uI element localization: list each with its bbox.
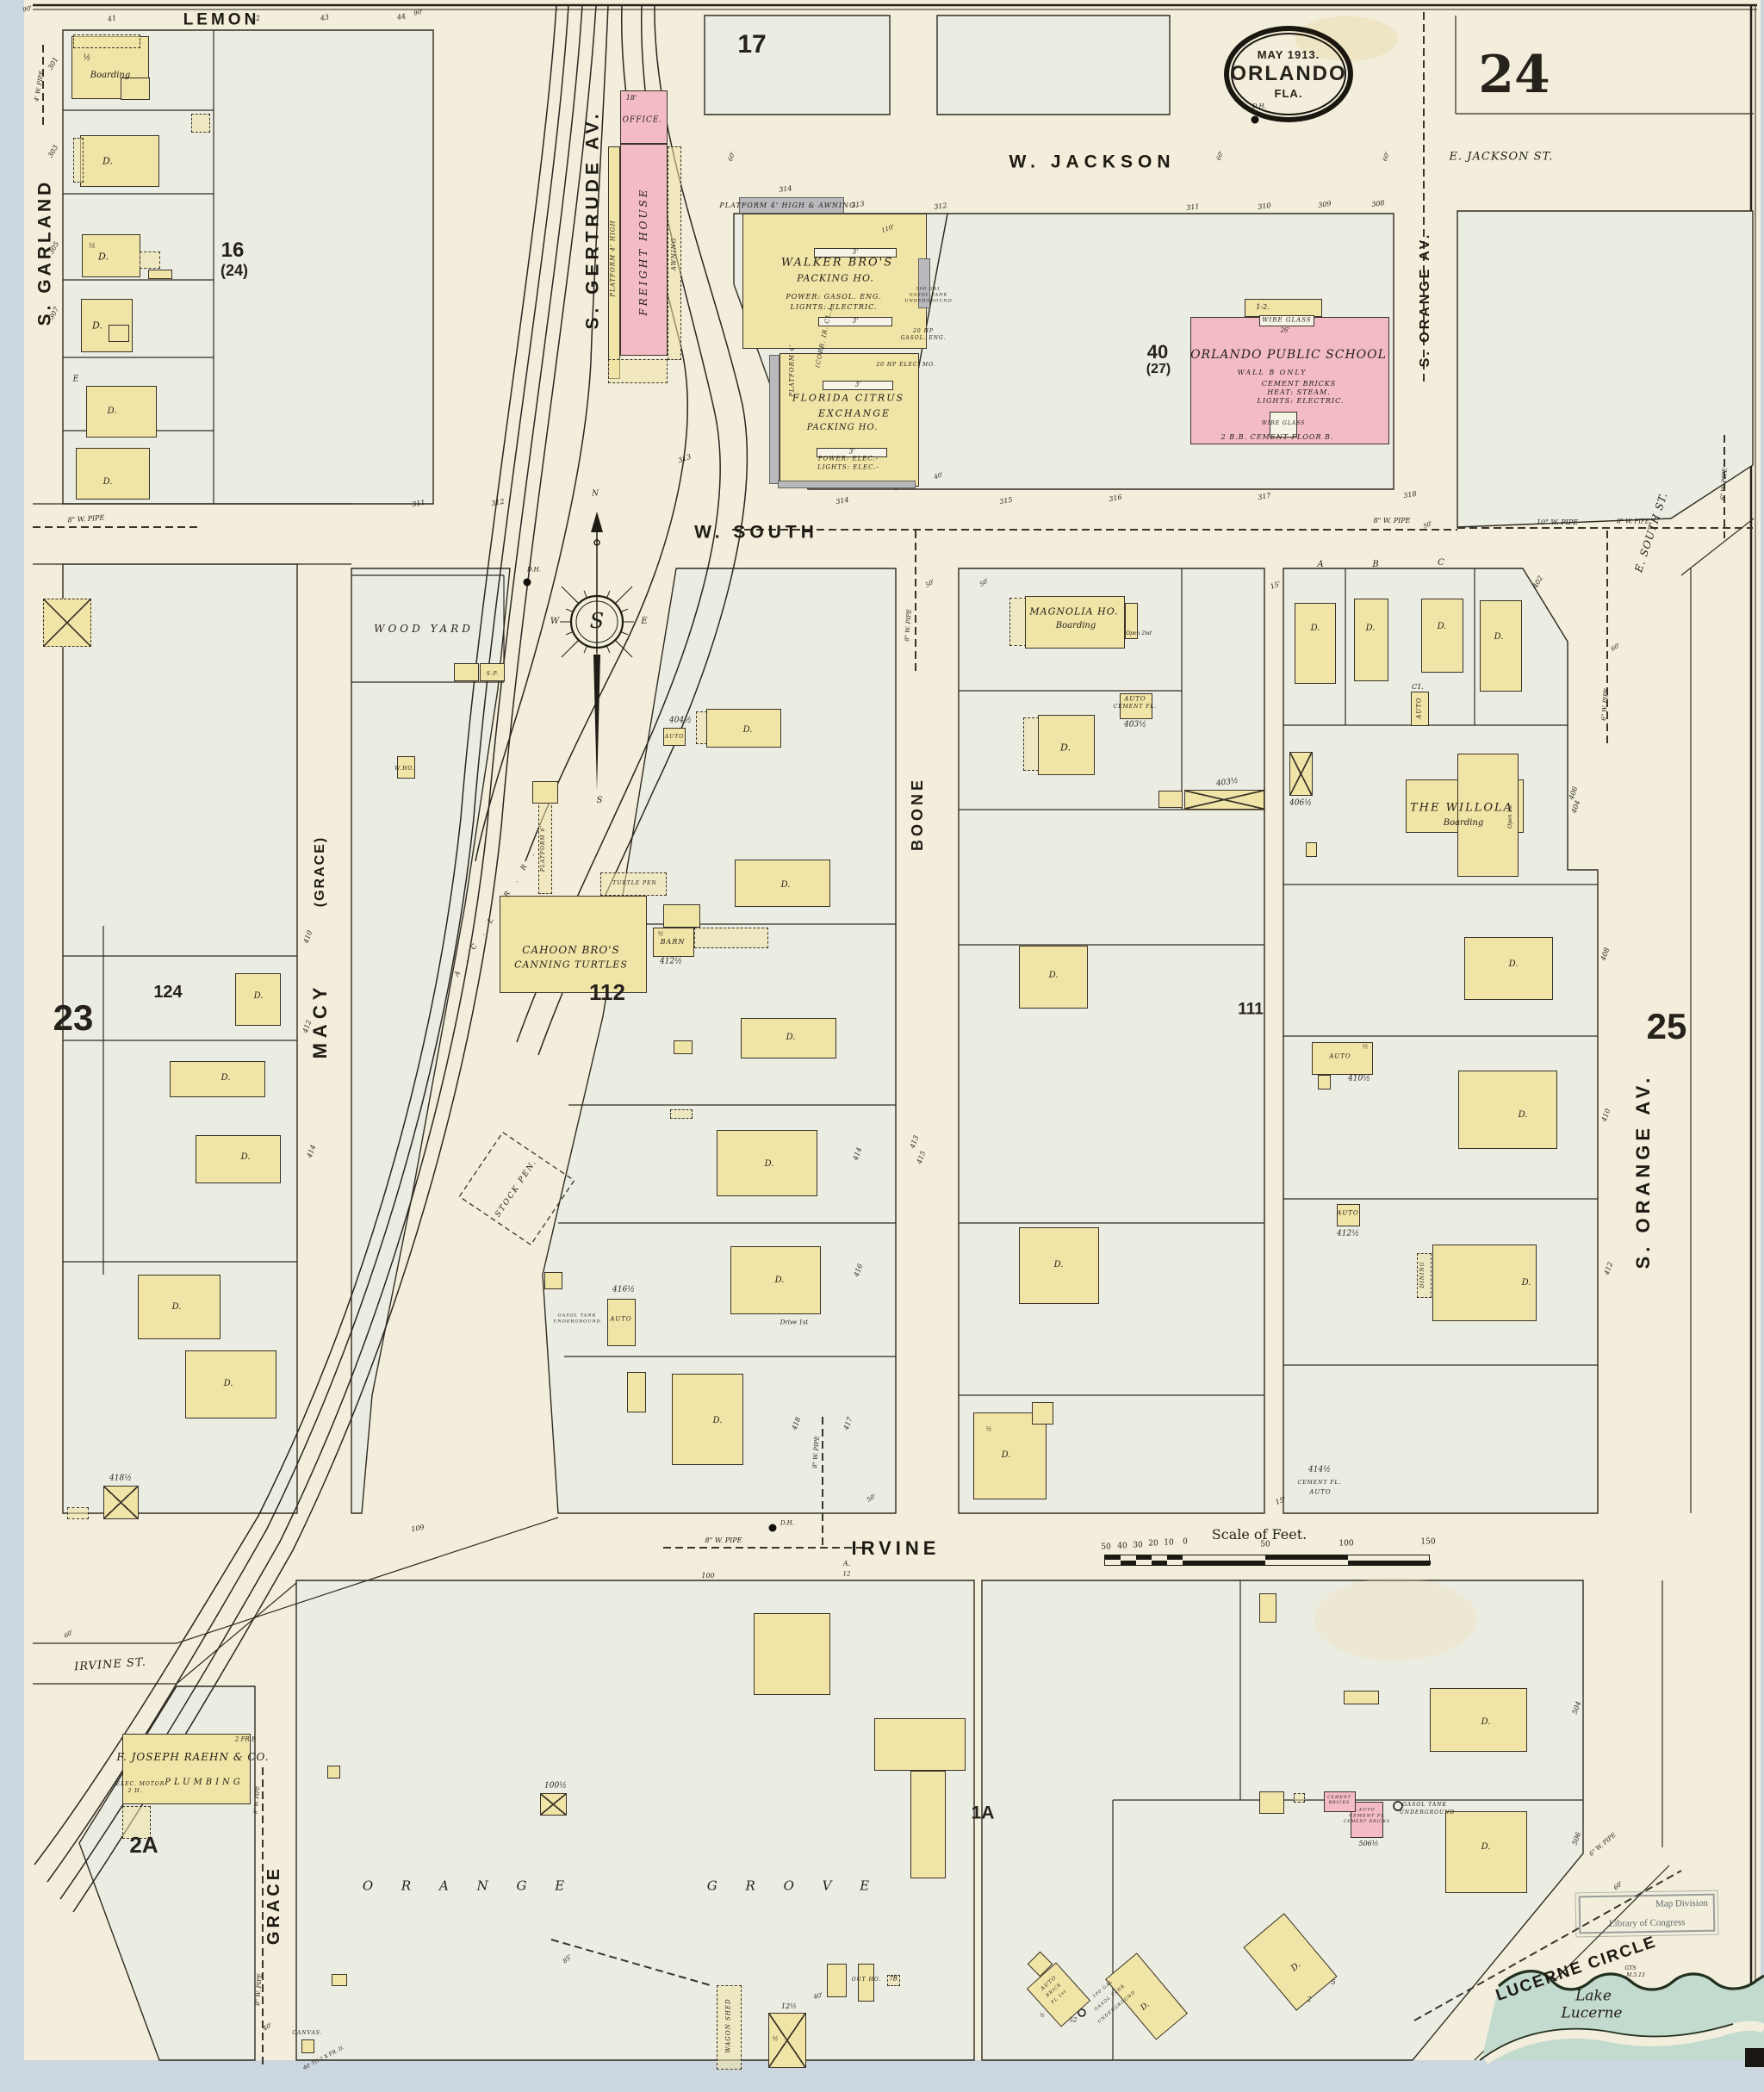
building — [1430, 1688, 1527, 1752]
note: GASOL TANK — [1402, 1803, 1447, 1808]
building-label: Boarding — [90, 71, 131, 80]
block-number: 16 — [221, 240, 245, 261]
scale-tick: 150 — [1420, 1539, 1435, 1547]
dimension: 26' — [1281, 328, 1290, 334]
stamp-date: MAY 1913. — [1258, 48, 1320, 61]
note: 2 — [1307, 1996, 1311, 2003]
building — [1259, 1791, 1284, 1814]
building — [858, 1964, 874, 2002]
building — [1354, 599, 1388, 681]
building-label: D. — [786, 1034, 796, 1042]
building-label: LIGHTS: ELEC.- — [817, 465, 879, 471]
building — [1289, 752, 1313, 796]
sanborn-map-page: LEMONS. GARLANDS. GERTRUDE AV.W. JACKSON… — [0, 0, 1764, 2092]
lot-letter: C — [1438, 559, 1444, 568]
scale-bar-cell — [1265, 1555, 1348, 1560]
note: GASOL. ENG. — [900, 336, 946, 341]
note: 12 — [843, 1572, 851, 1578]
building-label: F. JOSEPH RAEHN & CO. — [117, 1752, 270, 1762]
note: 1-2. — [1256, 304, 1269, 311]
building-label: PACKING HO. — [807, 424, 879, 432]
address: 100½ — [544, 1783, 567, 1791]
orange-grove-label: O R A N G E — [363, 1880, 576, 1893]
note: Open 2nd — [1126, 631, 1152, 636]
building-label: D. — [224, 1380, 233, 1388]
building-label: D. — [1509, 960, 1519, 969]
building-label: D. — [765, 1160, 774, 1169]
building — [910, 1771, 946, 1878]
building — [769, 355, 780, 484]
building — [140, 251, 160, 269]
building-label: PACKING HO. — [797, 274, 874, 283]
building — [170, 1061, 265, 1097]
note: UNDERGROUND — [1400, 1810, 1455, 1816]
scale-bar-cell — [1136, 1561, 1152, 1565]
loc-stamp-line1: Map Division — [1655, 1898, 1708, 1909]
note: GASOL TANK — [910, 294, 948, 298]
dimension: 3' — [853, 319, 858, 325]
building — [1306, 842, 1317, 857]
note: ELEC. MOTOR — [116, 1782, 165, 1787]
scale-bar-cell — [1167, 1555, 1183, 1560]
note: ½ — [986, 1427, 992, 1433]
scale-bar — [1104, 1555, 1430, 1566]
building-label: D. — [241, 1153, 251, 1162]
loc-stamp-line2: Library of Congress — [1609, 1917, 1686, 1929]
note: Drive 1st — [780, 1320, 808, 1326]
street-w-jackson: W. JACKSON — [1009, 153, 1175, 171]
adjacent-sheet-number: 25 — [1647, 1009, 1687, 1045]
building-label: WOOD YARD — [374, 624, 474, 634]
building — [109, 325, 129, 342]
note: 2 H. — [128, 1789, 143, 1794]
scale-bar-cell — [1105, 1561, 1121, 1565]
hydrant-label: D.H. — [780, 1521, 794, 1527]
note: LIGHTS: ELECTRIC. — [1258, 398, 1345, 405]
building-label: CEMENT FL. — [1114, 705, 1158, 710]
survey-date-stamp-ring: MAY 1913. ORLANDO FLA. — [1231, 33, 1346, 115]
scale-tick: 0 — [1183, 1539, 1188, 1547]
building-label: OUT HO. — [852, 1977, 882, 1983]
building-label: POWER: ELEC.- — [818, 456, 879, 462]
block-number: 112 — [589, 981, 625, 1003]
scale-bar-cell — [1265, 1561, 1348, 1565]
building — [827, 1964, 847, 1997]
building-label: D. — [1049, 972, 1059, 980]
scale-tick: 10 — [1164, 1540, 1173, 1548]
block-number: 111 — [1238, 1002, 1264, 1018]
building-label: BARN — [661, 939, 686, 946]
scale-tick: 50 — [1101, 1544, 1110, 1552]
building-label: D. — [1519, 1111, 1528, 1120]
building-label: D. — [98, 252, 109, 262]
building-label: D. — [102, 157, 113, 166]
note: 2 B.B. CEMENT FLOOR B. — [1221, 434, 1334, 441]
building — [663, 904, 700, 928]
building — [196, 1135, 281, 1183]
scale-bar-cell — [1183, 1555, 1265, 1560]
lot-letter: B — [1372, 561, 1378, 569]
building — [540, 1793, 567, 1816]
lot-letter: C1. — [1412, 684, 1424, 691]
building-label: PLATFORM 4' HIGH & AWNING. — [719, 202, 858, 209]
building — [672, 1374, 743, 1465]
dimension: 3' — [849, 450, 854, 456]
scale-bar-cell — [1167, 1561, 1183, 1565]
street-s-orange-av: S. ORANGE AV. — [1634, 1074, 1653, 1269]
compass-n: N — [592, 491, 599, 499]
building — [1294, 1793, 1305, 1803]
building — [76, 448, 150, 500]
address: 410½ — [1348, 1076, 1370, 1083]
dimension: 3' — [855, 382, 860, 388]
note: WALL B ONLY — [1238, 369, 1307, 376]
building — [778, 481, 916, 488]
note: WIRE GLASS — [1262, 318, 1311, 324]
scale-bar-cell — [1152, 1555, 1167, 1560]
note: 20 HP ELEC. MO. — [876, 363, 935, 368]
building-label: CANNING TURTLES — [514, 960, 628, 970]
note: CEMENT BRICKS — [1344, 1821, 1390, 1825]
building-label: AUTO — [1358, 1809, 1375, 1813]
building — [80, 135, 159, 187]
building-label: FREIGHT HOUSE — [638, 187, 649, 315]
note: ½ — [1363, 1045, 1369, 1051]
note: CEMENT BRICKS — [1262, 381, 1337, 388]
building-label: WAGON SHED — [726, 1998, 732, 2052]
note: HEAT: STEAM. — [1267, 389, 1331, 396]
building-label: D. — [221, 1074, 231, 1083]
building-label: D. — [1366, 624, 1376, 633]
street-e-jackson-st: E. JACKSON ST. — [1450, 152, 1554, 163]
building-label: CAHOON BRO'S — [522, 945, 620, 955]
note: ½ — [773, 2037, 779, 2043]
street-boone: BOONE — [910, 777, 925, 851]
building-label: D. — [1438, 623, 1447, 631]
street-irvine: IRVINE — [852, 1539, 941, 1558]
building-label: WALKER BRO'S — [781, 258, 893, 269]
scale-tick: 20 — [1148, 1541, 1158, 1549]
note: M.5.13 — [1626, 1973, 1644, 1978]
building-label: OFFICE. — [623, 117, 663, 125]
block-number: 2A — [129, 1834, 158, 1856]
building — [86, 386, 157, 438]
building-label: D. — [781, 881, 791, 890]
building — [1458, 1071, 1557, 1149]
building-label: PLATFORM 6' — [541, 825, 546, 872]
library-of-congress-stamp: Map Division Library of Congress — [1579, 1894, 1716, 1934]
pipe-label: 8" W. PIPE — [1374, 518, 1411, 525]
building-label: EXCHANGE — [818, 409, 891, 419]
block-number: 124 — [153, 984, 182, 1001]
street-w-south: W. SOUTH — [694, 524, 818, 542]
building — [874, 1718, 966, 1771]
dimension: 18' — [626, 95, 637, 102]
scale-tick: 50 — [1260, 1542, 1270, 1549]
pipe-label: 10" W. PIPE — [1537, 519, 1578, 526]
building — [67, 1507, 89, 1519]
address: 404½ — [669, 717, 692, 725]
building-label: ORLANDO PUBLIC SCHOOL — [1190, 349, 1387, 361]
building-label: Boarding — [1444, 819, 1484, 828]
address: 506½ — [1358, 1841, 1378, 1847]
address: 412½ — [660, 959, 682, 966]
building — [1032, 1402, 1053, 1425]
note: 7B — [889, 1977, 898, 1983]
building-label: AUTO — [665, 735, 684, 740]
building — [103, 1486, 139, 1519]
block-number: 1A — [972, 1804, 995, 1822]
building-label: TURTLE PEN — [612, 881, 656, 886]
scale-tick: 100 — [1339, 1540, 1353, 1548]
building-label: ½ — [84, 55, 91, 63]
building — [1445, 1811, 1527, 1893]
address: 414½ — [1308, 1467, 1331, 1474]
scale-bar-cell — [1348, 1555, 1431, 1560]
building-label: PLATFORM 4' — [790, 344, 796, 396]
building — [1009, 598, 1027, 646]
address: 418½ — [109, 1475, 132, 1483]
building-label: PLUMBING — [165, 1779, 244, 1787]
building-label: CANVAS. — [292, 2031, 322, 2036]
note: ½ — [1040, 2014, 1045, 2019]
building — [301, 2039, 314, 2053]
building — [148, 270, 172, 279]
lot-letter: A — [1317, 561, 1323, 569]
scale-bar-cell — [1183, 1561, 1265, 1565]
building — [332, 1974, 347, 1986]
building-label: D. — [1054, 1261, 1064, 1269]
building — [454, 663, 479, 681]
stamp-city: ORLANDO — [1230, 62, 1346, 86]
street-grace: GRACE — [265, 1865, 283, 1945]
building-label: D. — [1060, 743, 1071, 753]
orange-grove-label: G R O V E — [707, 1880, 881, 1893]
building — [43, 599, 91, 647]
building — [754, 1613, 830, 1695]
note: WIRE GLASS — [1262, 421, 1306, 426]
compass-e: E — [641, 618, 647, 626]
address: 12½ — [781, 2003, 797, 2010]
building-label: AUTO — [1124, 697, 1146, 703]
building — [327, 1766, 340, 1779]
sheet-number: 24 — [1475, 45, 1553, 105]
building-label: D. — [108, 407, 117, 416]
building — [608, 359, 668, 383]
scale-bar-cell — [1105, 1555, 1121, 1560]
adjacent-sheet-number: 23 — [53, 1000, 94, 1036]
note: A. — [843, 1561, 850, 1567]
address: 406½ — [1289, 800, 1312, 808]
lake-label: Lake — [1575, 1990, 1612, 2004]
note: 20 HP — [913, 329, 934, 334]
building-label: D. — [1002, 1451, 1011, 1460]
building-label: AUTO — [1417, 697, 1423, 718]
building-label: D. — [1522, 1279, 1531, 1288]
address: 100 — [701, 1573, 714, 1580]
pipe-label: 8" W. PIPE — [705, 1537, 742, 1544]
building — [1318, 1075, 1331, 1089]
building — [694, 928, 768, 948]
building-label: DINING — [1420, 1262, 1425, 1288]
scale-bar-cell — [1121, 1555, 1136, 1560]
pipe-label: 8" W. PIPE — [1617, 519, 1649, 525]
note: UNDERGROUND — [904, 300, 952, 304]
note: GTS — [1625, 1966, 1637, 1971]
scale-tick: 40 — [1117, 1543, 1127, 1550]
building-label: D. — [254, 992, 264, 1001]
block-number: (27) — [1146, 363, 1171, 376]
address: 412½ — [1337, 1231, 1359, 1238]
building — [73, 34, 140, 48]
building-label: FLORIDA CITRUS — [792, 394, 904, 403]
building-label: AWNING — [672, 238, 678, 271]
note: UNDERGROUND — [553, 1320, 600, 1325]
building — [627, 1372, 646, 1412]
building-label: D. — [1481, 1843, 1491, 1852]
building-label: AUTO — [1309, 1490, 1331, 1496]
building-label: D. — [743, 726, 753, 735]
building-label: AUTO — [1337, 1211, 1358, 1217]
building — [82, 234, 140, 277]
note: 2 FR.B — [235, 1737, 256, 1743]
building — [674, 1040, 693, 1054]
building-label: W.HO. — [394, 767, 415, 772]
building-label: D. — [1494, 633, 1504, 642]
address: 403½ — [1124, 722, 1146, 729]
street-s-orange-av-top: S. ORANGE AV. — [1419, 233, 1432, 368]
scale-bar-cell — [1136, 1555, 1152, 1560]
note: 52 — [1070, 2018, 1078, 2024]
building-label: Boarding — [1056, 622, 1096, 630]
building-label: PLATFORM 4' HIGH — [611, 220, 617, 296]
building-label: AUTO — [610, 1317, 631, 1323]
address: 416½ — [612, 1287, 635, 1294]
building-label: THE WILLOLA — [1410, 803, 1513, 814]
note: CEMENT — [1327, 1797, 1351, 1801]
building-label: MAGNOLIA HO. — [1029, 607, 1118, 617]
block-number: (24) — [220, 263, 248, 278]
scale-title: Scale of Feet. — [1212, 1528, 1307, 1542]
scale-bar-cell — [1152, 1561, 1167, 1565]
survey-date-stamp: MAY 1913. ORLANDO FLA. — [1224, 26, 1353, 122]
scale-bar-cell — [1121, 1561, 1136, 1565]
building-label: POWER: GASOL. ENG. — [786, 294, 881, 301]
street-grace-alt: (GRACE) — [314, 836, 327, 907]
building-label: D. — [172, 1303, 182, 1312]
building-label: D. — [713, 1417, 723, 1425]
building-label: S.P. — [487, 672, 500, 677]
building-label: CEMENT FL — [1349, 1815, 1384, 1819]
building — [1480, 600, 1522, 692]
building — [1158, 791, 1183, 808]
lake-label: Lucerne — [1562, 2007, 1623, 2021]
building — [607, 1299, 636, 1346]
building — [1344, 1691, 1379, 1704]
building-label: D. — [1311, 624, 1320, 633]
scale-bar-cell — [1348, 1561, 1431, 1565]
building-label: D. — [775, 1276, 785, 1285]
stamp-state: FLA. — [1275, 87, 1303, 100]
block-number: 40 — [1147, 343, 1168, 362]
building-label: CEMENT FL. — [1298, 1481, 1342, 1486]
building — [1184, 790, 1264, 810]
street-s-gertrude-av: S. GERTRUDE AV. — [584, 109, 602, 329]
building-label: ½ — [89, 243, 96, 250]
building-label: E — [73, 376, 79, 384]
street-lemon: LEMON — [183, 12, 260, 28]
note: 100 GAL — [916, 288, 941, 292]
building-label: D. — [1481, 1718, 1491, 1727]
building-label: AUTO — [1329, 1054, 1351, 1060]
note: Open 1st — [1508, 804, 1513, 828]
building — [670, 1109, 693, 1119]
street-macy: MACY — [311, 983, 330, 1059]
building — [1295, 603, 1336, 684]
note: ½ — [658, 932, 664, 938]
hydrant-label: D.H. — [527, 568, 541, 574]
compass-w: W — [550, 618, 559, 626]
building — [1023, 717, 1039, 771]
dimension: 3' — [853, 250, 858, 256]
note: BRICKS — [1329, 1802, 1350, 1806]
building — [1421, 599, 1463, 673]
block-number: 17 — [737, 32, 766, 58]
note: GASOL TANK — [558, 1314, 597, 1319]
building-label: D. — [92, 321, 102, 331]
scale-tick: 30 — [1133, 1542, 1142, 1549]
compass-monogram: S — [590, 611, 604, 631]
building — [544, 1272, 562, 1289]
compass-s: S — [597, 797, 603, 805]
building — [191, 114, 210, 133]
building — [121, 78, 150, 100]
building-label: D. — [103, 478, 113, 487]
building — [532, 781, 558, 804]
building — [73, 138, 84, 183]
building — [1259, 1593, 1276, 1623]
note: 5 — [1331, 1979, 1335, 1986]
